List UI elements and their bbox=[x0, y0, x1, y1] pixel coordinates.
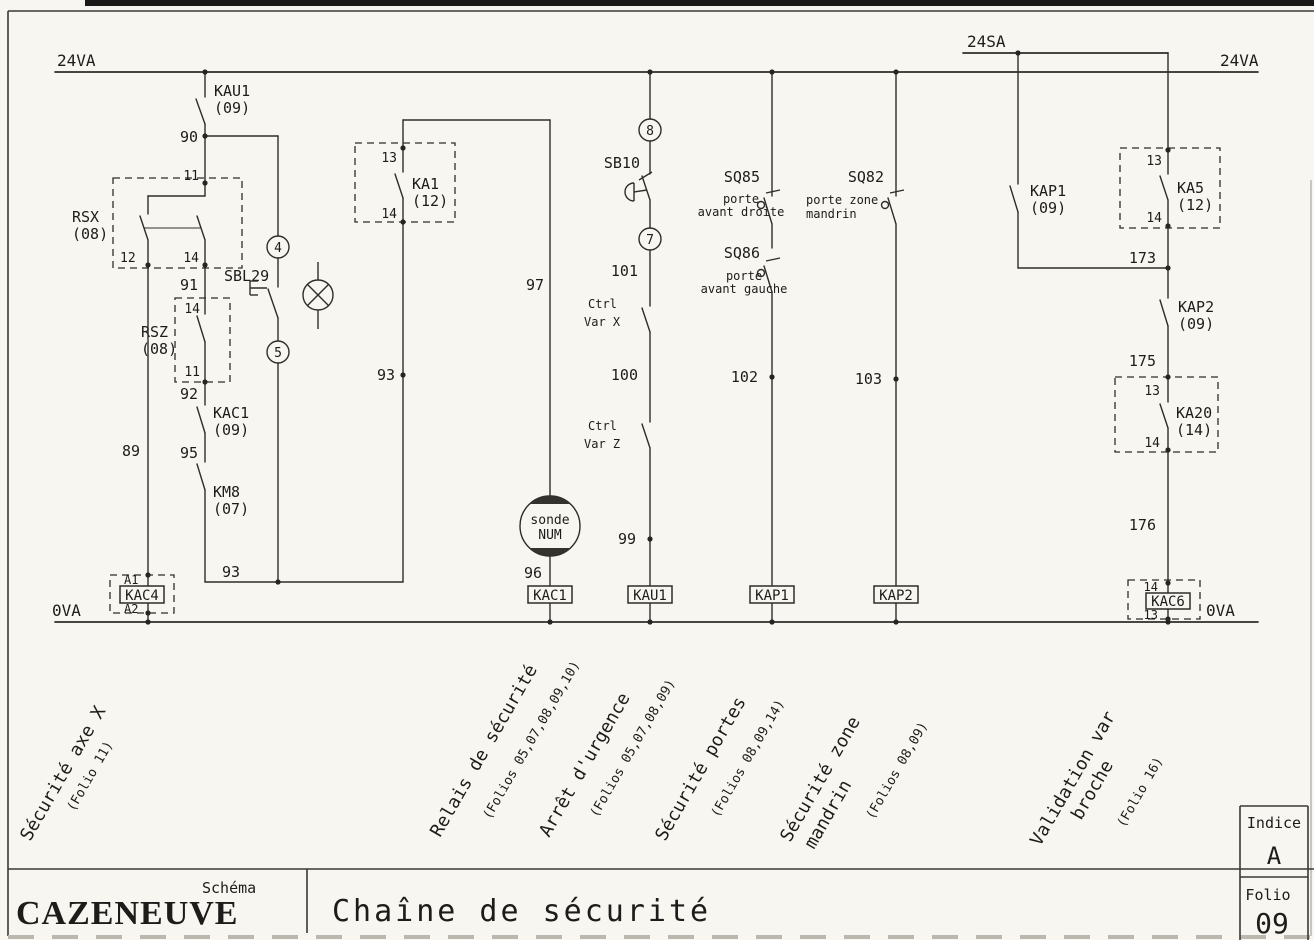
contact-kau1-folio: (09) bbox=[214, 99, 250, 117]
sq85-desc-line1: porte bbox=[723, 192, 759, 206]
wire-100-label: 100 bbox=[611, 366, 638, 384]
sq82-desc-line2: mandrin bbox=[806, 207, 857, 221]
rsx-folio: (08) bbox=[72, 225, 108, 243]
ka1-terminal-13: 13 bbox=[381, 151, 397, 166]
wire-99-label: 99 bbox=[618, 530, 636, 548]
sb10-label: SB10 bbox=[604, 154, 640, 172]
coil-kap2-label: KAP2 bbox=[879, 588, 913, 604]
wire-103-label: 103 bbox=[855, 370, 882, 388]
ka1-label: KA1 bbox=[412, 175, 439, 193]
branch-securite-axe-x: KAU1 (09) 90 11 12 14 RSX (08) 91 14 bbox=[72, 72, 403, 622]
contact-kau1-label: KAU1 bbox=[214, 82, 250, 100]
sonde-label-line1: sonde bbox=[530, 513, 569, 528]
contact-kac1-label: KAC1 bbox=[213, 404, 249, 422]
wire-91-label: 91 bbox=[180, 276, 198, 294]
kac4-terminal-a2: A2 bbox=[124, 602, 138, 616]
wire-97-label: 97 bbox=[526, 276, 544, 294]
section-folio-validation-var: (Folio 16) bbox=[1114, 755, 1166, 830]
ctrl-var-x-label-line1: Ctrl bbox=[588, 297, 617, 311]
rsx-terminal-14: 14 bbox=[183, 251, 199, 266]
relay-ka1-box bbox=[355, 143, 455, 222]
sq82-label: SQ82 bbox=[848, 168, 884, 186]
contact-sq82 bbox=[888, 198, 896, 224]
mushroom-button-icon bbox=[625, 183, 647, 201]
wire-95-label: 95 bbox=[180, 444, 198, 462]
sq86-label: SQ86 bbox=[724, 244, 760, 262]
kac6-terminal-14: 14 bbox=[1144, 580, 1158, 594]
circled-5-label: 5 bbox=[274, 346, 282, 361]
rsz-terminal-14: 14 bbox=[184, 302, 200, 317]
contact-ka20 bbox=[1160, 404, 1168, 428]
coil-kac1-label: KAC1 bbox=[533, 588, 567, 604]
wire-173-label: 173 bbox=[1129, 249, 1156, 267]
branch-securite-portes: SQ85 porte avant droite SQ86 porte avant… bbox=[698, 72, 794, 622]
contact-ctrl-var-z bbox=[642, 424, 650, 448]
rsx-terminal-11: 11 bbox=[183, 169, 199, 184]
contact-kac1 bbox=[197, 407, 205, 433]
rsz-label: RSZ bbox=[141, 323, 168, 341]
circled-7-label: 7 bbox=[646, 233, 654, 248]
relay-ka5-box bbox=[1120, 148, 1220, 228]
indice-label: Indice bbox=[1247, 814, 1301, 832]
sheet-frame bbox=[8, 0, 1314, 937]
contact-kap1-label: KAP1 bbox=[1030, 182, 1066, 200]
wire-93-label: 93 bbox=[222, 563, 240, 581]
rsx-terminal-12: 12 bbox=[120, 251, 136, 266]
ka5-folio: (12) bbox=[1177, 196, 1213, 214]
rsx-label: RSX bbox=[72, 208, 99, 226]
contact-kau1 bbox=[196, 99, 205, 124]
drawing-title: Chaîne de sécurité bbox=[332, 894, 711, 929]
branch-relais-securite: 13 14 KA1 (12) 93 97 sonde NUM 96 KAC1 bbox=[355, 120, 580, 622]
contact-kap2-folio: (09) bbox=[1178, 315, 1214, 333]
manufacturer-name: CAZENEUVE bbox=[16, 895, 238, 932]
contact-ka5 bbox=[1160, 176, 1168, 200]
rsz-folio: (08) bbox=[141, 340, 177, 358]
rail-label-0va-right: 0VA bbox=[1206, 601, 1235, 620]
ka20-folio: (14) bbox=[1176, 421, 1212, 439]
folio-value: 09 bbox=[1255, 907, 1289, 940]
ctrl-var-z-label-line2: Var Z bbox=[584, 437, 620, 451]
contact-km8 bbox=[197, 464, 205, 490]
rsz-terminal-11: 11 bbox=[184, 365, 200, 380]
wire-90-label: 90 bbox=[180, 128, 198, 146]
circled-4-label: 4 bbox=[274, 241, 282, 256]
sbl29-label: SBL29 bbox=[224, 267, 269, 285]
section-titles: Sécurité axe X (Folio 11) Relais de sécu… bbox=[16, 659, 1166, 853]
scan-edge-artifact bbox=[85, 0, 1314, 6]
sq82-roller-icon bbox=[882, 202, 889, 209]
branch-validation-var-broche: KAP1 (09) 13 14 KA5 (12) 173 KAP2 (09) 1… bbox=[1010, 53, 1220, 622]
rail-label-24sa: 24SA bbox=[967, 32, 1006, 51]
wire-102-label: 102 bbox=[731, 368, 758, 386]
branch-kac4: 89 A1 KAC4 A2 bbox=[110, 265, 174, 622]
doc-type-label: Schéma bbox=[202, 879, 256, 897]
contact-sbl29 bbox=[268, 289, 278, 318]
sonde-label-line2: NUM bbox=[538, 528, 562, 543]
schematic-page: 24VA 24VA 24SA 0VA 0VA KAU1 (09) 90 11 1… bbox=[0, 0, 1314, 940]
sq86-desc-line2: avant gauche bbox=[701, 282, 788, 296]
ka5-label: KA5 bbox=[1177, 179, 1204, 197]
kac4-terminal-a1: A1 bbox=[124, 573, 138, 587]
indice-value: A bbox=[1267, 842, 1282, 870]
kac6-terminal-13: 13 bbox=[1144, 608, 1158, 622]
sq86-desc-line1: porte bbox=[726, 269, 762, 283]
coil-kap1-label: KAP1 bbox=[755, 588, 789, 604]
ka1-folio: (12) bbox=[412, 192, 448, 210]
ka20-label: KA20 bbox=[1176, 404, 1212, 422]
ka1-terminal-14: 14 bbox=[381, 207, 397, 222]
ka5-terminal-13: 13 bbox=[1146, 154, 1162, 169]
wire-101-label: 101 bbox=[611, 262, 638, 280]
contact-kap2-label: KAP2 bbox=[1178, 298, 1214, 316]
section-folio-securite-zone: (Folios 08,09) bbox=[863, 720, 931, 822]
contact-ctrl-var-x bbox=[642, 308, 650, 332]
ctrl-var-x-label-line2: Var X bbox=[584, 315, 621, 329]
rail-label-0va-left: 0VA bbox=[52, 601, 81, 620]
ka20-terminal-13: 13 bbox=[1144, 384, 1160, 399]
contact-km8-folio: (07) bbox=[213, 500, 249, 518]
contact-kap1-folio: (09) bbox=[1030, 199, 1066, 217]
wire-93-node-label: 93 bbox=[377, 366, 395, 384]
wire-92-label: 92 bbox=[180, 385, 198, 403]
branch-securite-zone-mandrin: SQ82 porte zone mandrin 103 KAP2 bbox=[806, 72, 918, 622]
ka5-terminal-14: 14 bbox=[1146, 211, 1162, 226]
folio-label: Folio bbox=[1245, 886, 1290, 904]
wire-175-label: 175 bbox=[1129, 352, 1156, 370]
sonde-num-probe-icon: sonde NUM bbox=[520, 496, 580, 556]
sq82-desc-line1: porte zone bbox=[806, 193, 878, 207]
ka20-terminal-14: 14 bbox=[1144, 436, 1160, 451]
sq85-desc-line2: avant droite bbox=[698, 205, 785, 219]
branch-arret-urgence: 8 SB10 7 101 Ctrl Var X 100 Ctrl Var Z 9… bbox=[584, 72, 672, 622]
contact-kap2 bbox=[1160, 300, 1168, 326]
wire-89-label: 89 bbox=[122, 442, 140, 460]
relay-rsx: 11 12 14 RSX (08) bbox=[72, 169, 242, 268]
coil-kac6: 14 KAC6 13 bbox=[1128, 580, 1200, 622]
contact-kap1 bbox=[1010, 186, 1018, 212]
pilot-lamp-icon bbox=[303, 262, 333, 329]
contact-km8-label: KM8 bbox=[213, 483, 240, 501]
ctrl-var-z-label-line1: Ctrl bbox=[588, 419, 617, 433]
contact-sb10 bbox=[642, 176, 650, 200]
rail-label-24va-left: 24VA bbox=[57, 51, 96, 70]
indice-folio-box: Indice A Folio 09 bbox=[1240, 806, 1308, 940]
circled-8-label: 8 bbox=[646, 124, 654, 139]
contact-ka1 bbox=[395, 174, 403, 198]
rail-label-24va-right: 24VA bbox=[1220, 51, 1259, 70]
wire-176-label: 176 bbox=[1129, 516, 1156, 534]
contact-kac1-folio: (09) bbox=[213, 421, 249, 439]
sq85-label: SQ85 bbox=[724, 168, 760, 186]
wire-96-label: 96 bbox=[524, 564, 542, 582]
schematic-drawing: 24VA 24VA 24SA 0VA 0VA KAU1 (09) 90 11 1… bbox=[0, 0, 1314, 940]
coil-kau1-label: KAU1 bbox=[633, 588, 667, 604]
